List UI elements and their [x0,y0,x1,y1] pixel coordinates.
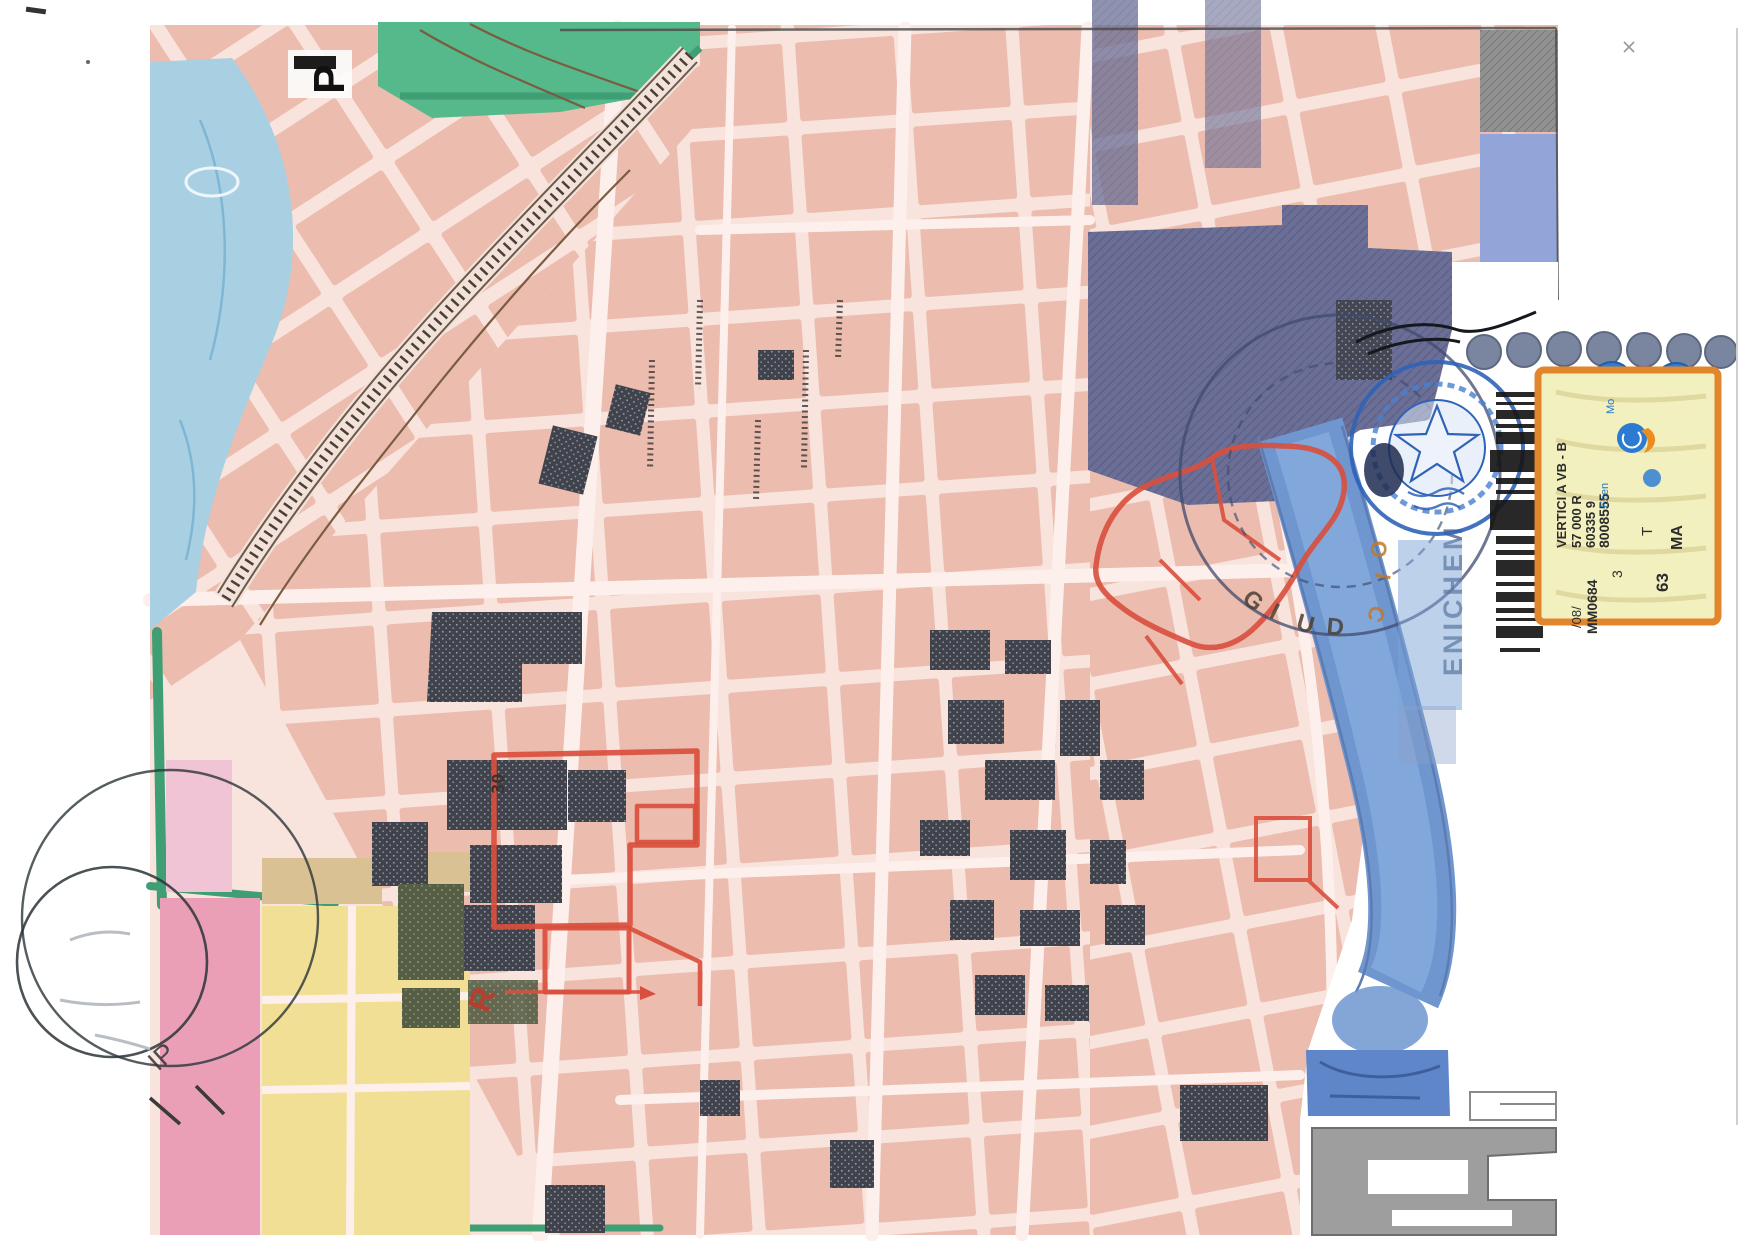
grey-corner-block [1480,30,1558,132]
sticker-code5: /08/ [1569,606,1584,628]
revenue-sticker: VERTICI A VB - B 57 000 R 60335 9 800855… [1538,370,1718,634]
sticker-ecen: Ecen [1599,483,1611,508]
sticker-t: T [1639,527,1656,536]
water-inlet [1306,1050,1450,1116]
parking-marker: P [288,50,354,98]
sticker-mo: Mo [1605,399,1617,414]
sticker-code4: MM0684 [1584,579,1600,634]
periwinkle-water-block [1480,134,1558,262]
parking-label: P [305,65,354,94]
svg-text:O: O [1366,540,1392,559]
sticker-code6: 3 [1609,570,1625,578]
svg-text:D: D [1325,613,1345,641]
sticker-ma: MA [1669,525,1686,550]
sticker-code3: 57 000 R [1569,495,1584,548]
parcel-number-30: 30 [489,774,509,794]
map-canvas: ENICHEM R 30 P IP [0,0,1760,1241]
sticker-vertici: VERTICI A VB - B [1554,442,1569,548]
scanned-map-page: ENICHEM R 30 P IP [0,0,1760,1241]
sticker-63: 63 [1653,573,1672,592]
